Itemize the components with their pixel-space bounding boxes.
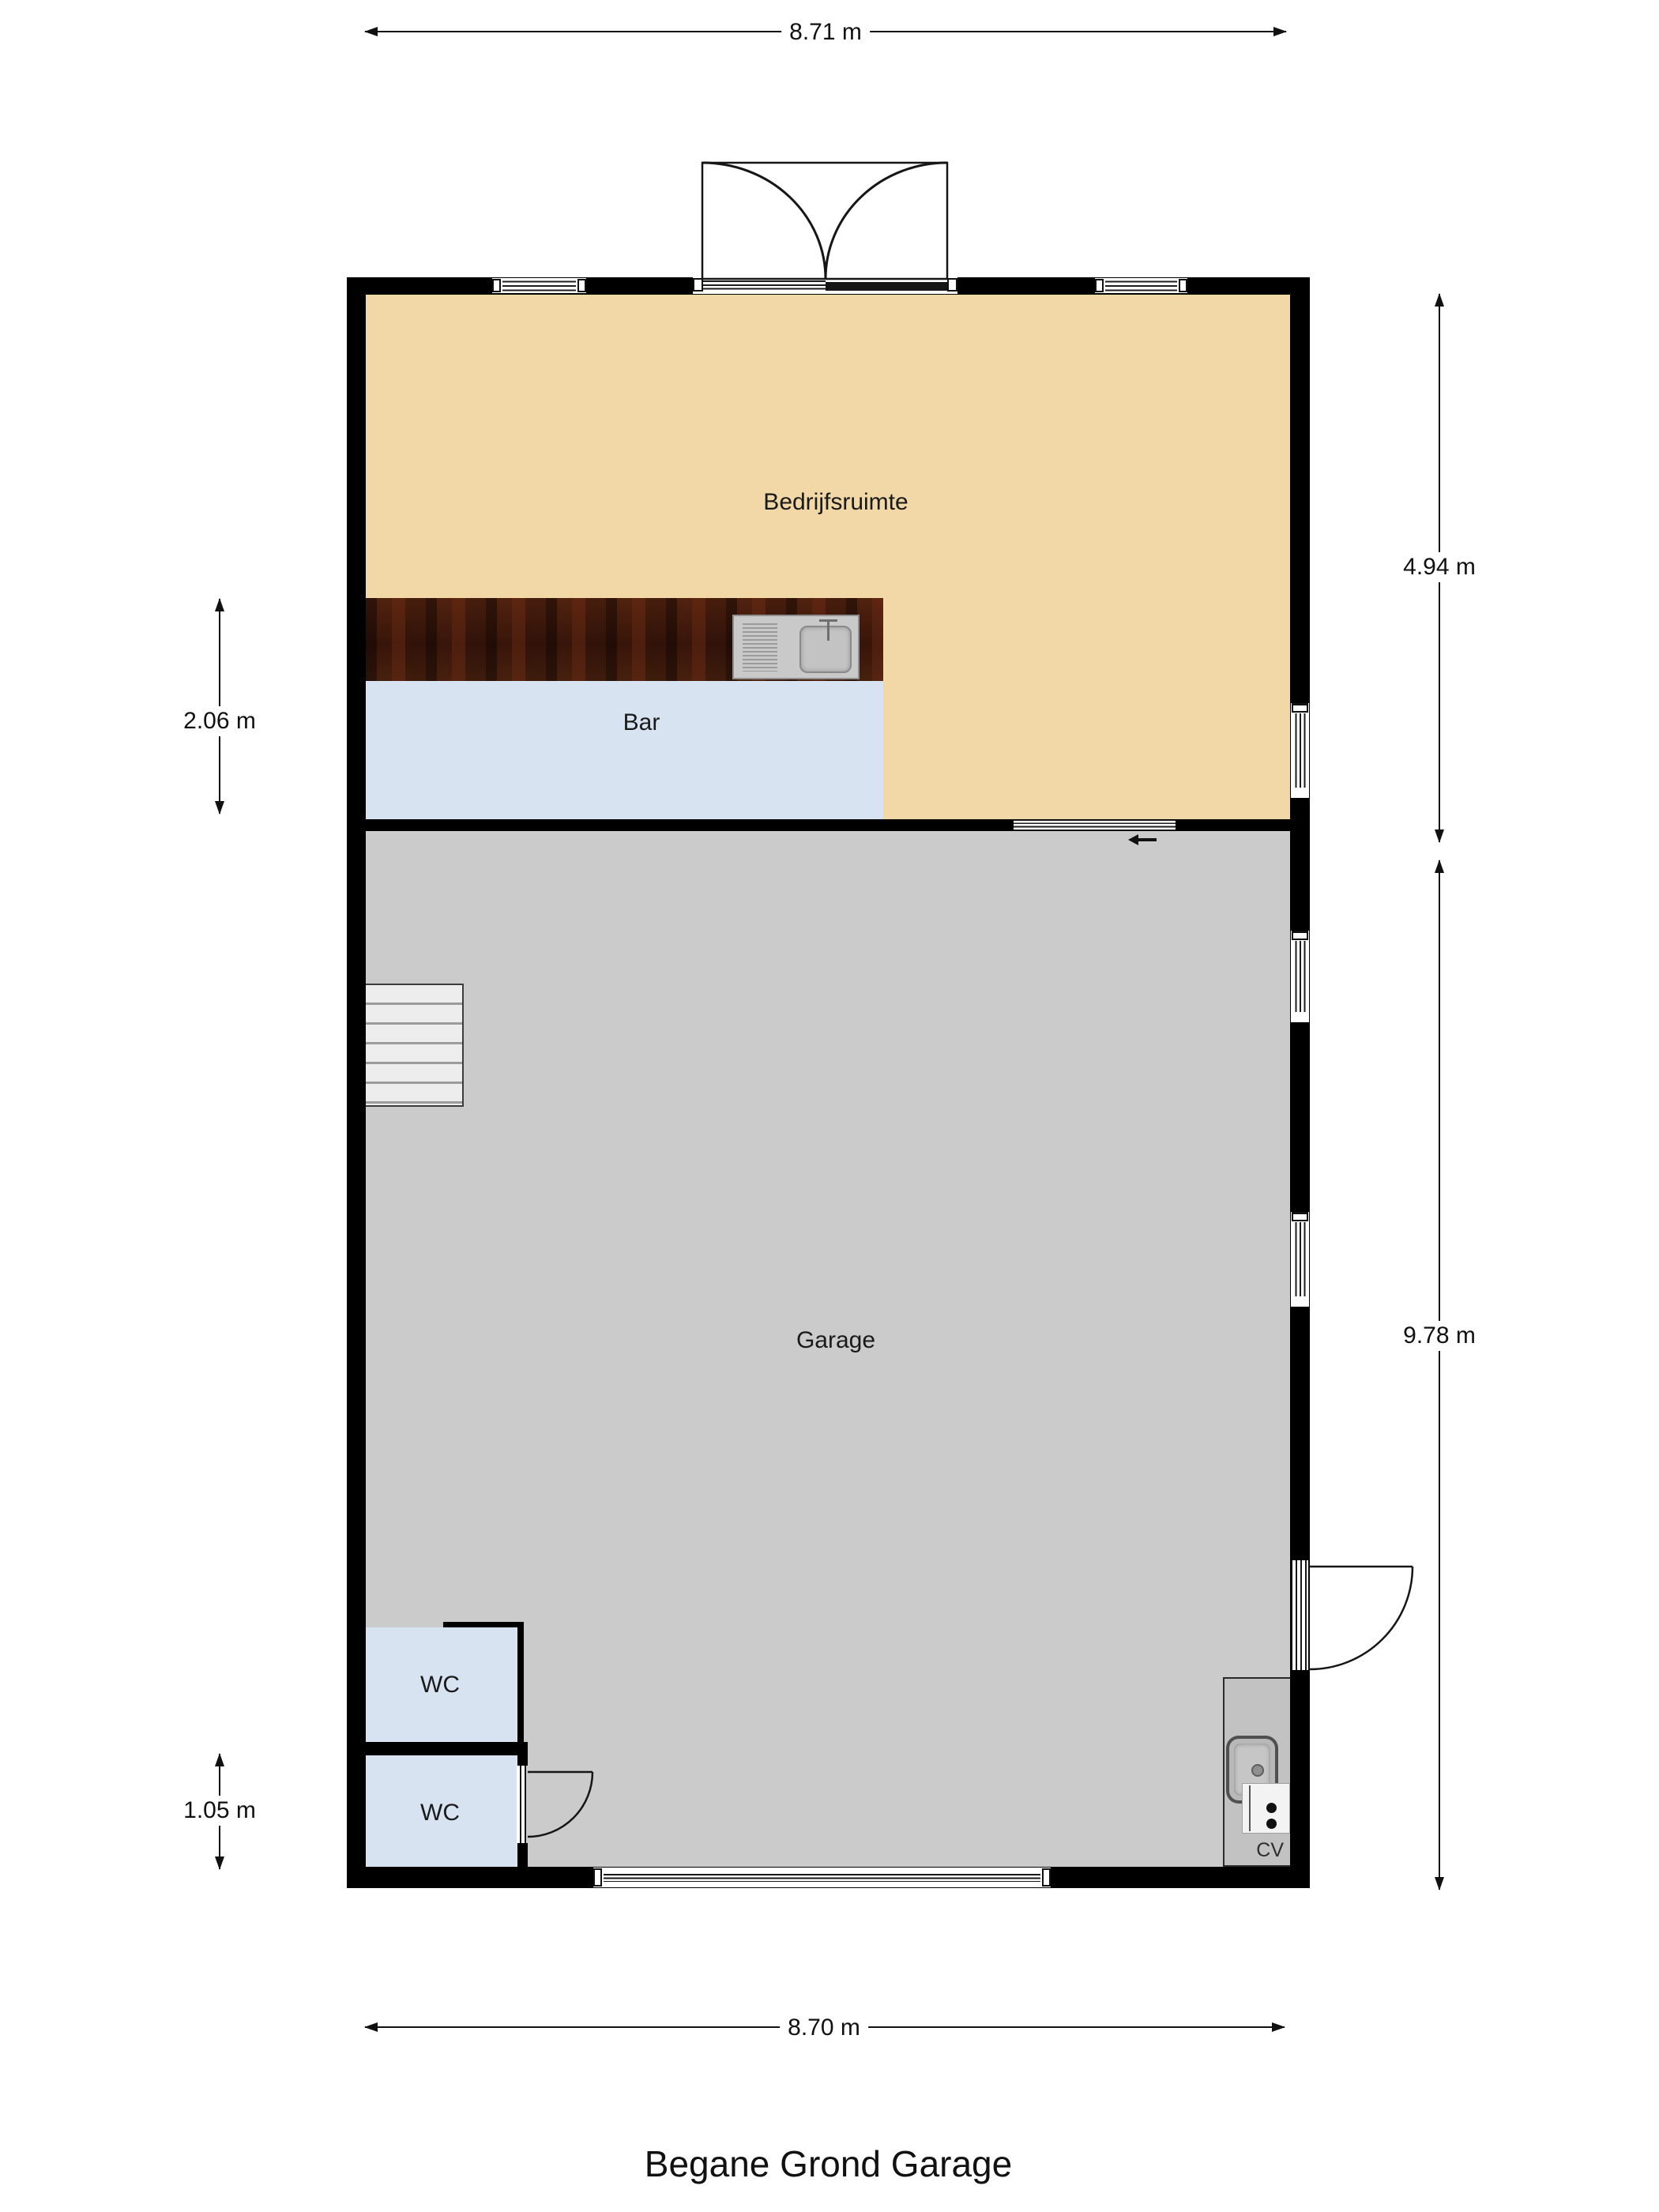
window-jamb (1292, 931, 1308, 940)
cv-boiler-icon (1242, 1783, 1290, 1834)
window-bottom-wall (593, 1868, 1051, 1887)
arrow-down-icon (215, 801, 224, 814)
arrow-down-icon (1435, 1877, 1444, 1890)
cv-boiler-knob (1266, 1819, 1277, 1829)
cv-boiler-knob (1266, 1803, 1277, 1813)
window-glazing (1295, 1222, 1305, 1296)
window-right-garage-lower (1291, 1212, 1309, 1307)
window-glazing (604, 1874, 1040, 1882)
stairs (366, 984, 464, 1107)
cv-label: CV (1224, 1839, 1284, 1862)
dimension-top-label: 8.71 m (781, 17, 870, 47)
double-door-swing-right (826, 163, 947, 279)
room-label-bar: Bar (623, 709, 660, 736)
dimension-left-lower-label: 1.05 m (175, 1796, 264, 1826)
wc2-right-wall-upper (517, 1755, 528, 1766)
sliding-door (1014, 819, 1176, 831)
floorplan-title: Begane Grond Garage (347, 2142, 1310, 2185)
window-glazing (1295, 941, 1305, 1012)
window-jamb (492, 279, 501, 292)
room-label-wc2: WC (420, 1800, 460, 1826)
arrow-left-icon (364, 27, 378, 36)
wc1-right-wall (517, 1622, 524, 1742)
arrow-right-icon (1272, 2022, 1285, 2032)
window-jamb (1095, 279, 1104, 292)
room-label-bedrijfsruimte: Bedrijfsruimte (763, 489, 908, 516)
garage-side-door-frame (1291, 1560, 1310, 1670)
arrow-right-icon (1273, 27, 1287, 36)
dimension-bottom-label: 8.70 m (780, 2013, 868, 2043)
wc-door-frame (515, 1766, 528, 1843)
floorplan: CV (0, 0, 1659, 2212)
arrow-up-icon (1435, 293, 1444, 307)
window-top-left (492, 278, 586, 293)
window-jamb (1292, 704, 1308, 713)
door-jamb (693, 278, 703, 292)
arrow-down-icon (1435, 829, 1444, 843)
window-right-bedrijfsruimte (1291, 703, 1309, 798)
door-sill-glazed (703, 280, 826, 290)
room-label-wc1: WC (420, 1672, 460, 1698)
garage-side-door-swing (1310, 1567, 1413, 1669)
dimension-left-upper-label: 2.06 m (175, 706, 264, 736)
double-door-leaves (702, 163, 947, 279)
dimension-right-lower-label: 9.78 m (1395, 1321, 1484, 1351)
dimension-right-lower-line (1439, 860, 1440, 1890)
window-glazing (1295, 713, 1305, 788)
arrow-up-icon (215, 598, 224, 611)
double-door-opening (693, 277, 957, 294)
window-jamb (577, 279, 586, 292)
bar-sink-icon (732, 615, 860, 679)
arrow-up-icon (1435, 860, 1444, 873)
arrow-up-icon (215, 1753, 224, 1766)
bar-sink-basin (799, 626, 852, 673)
cv-sink-tap-icon (1251, 1764, 1264, 1777)
double-door-swing-left (702, 163, 826, 279)
bar-sink-tap-icon (819, 619, 837, 622)
window-jamb (1292, 1213, 1308, 1221)
bar-sink-tap-icon (827, 620, 829, 641)
room-bar (366, 681, 883, 819)
window-glazing (502, 280, 576, 291)
window-jamb (1042, 1868, 1051, 1887)
arrow-down-icon (215, 1856, 224, 1870)
window-jamb (593, 1868, 602, 1887)
window-glazing (1105, 280, 1177, 291)
door-sill-solid (826, 280, 947, 291)
bar-sink-drainer (743, 623, 777, 671)
window-right-garage-upper (1291, 931, 1309, 1022)
wc-partition-wall (366, 1742, 528, 1755)
arrow-left-icon (364, 2022, 378, 2032)
window-top-right (1095, 278, 1187, 293)
cv-area: CV (1223, 1677, 1290, 1867)
window-jamb (1179, 279, 1187, 292)
wc2-right-wall-lower (517, 1843, 528, 1867)
dimension-right-upper-label: 4.94 m (1395, 552, 1484, 582)
door-jamb (947, 278, 957, 292)
room-label-garage: Garage (796, 1327, 875, 1354)
